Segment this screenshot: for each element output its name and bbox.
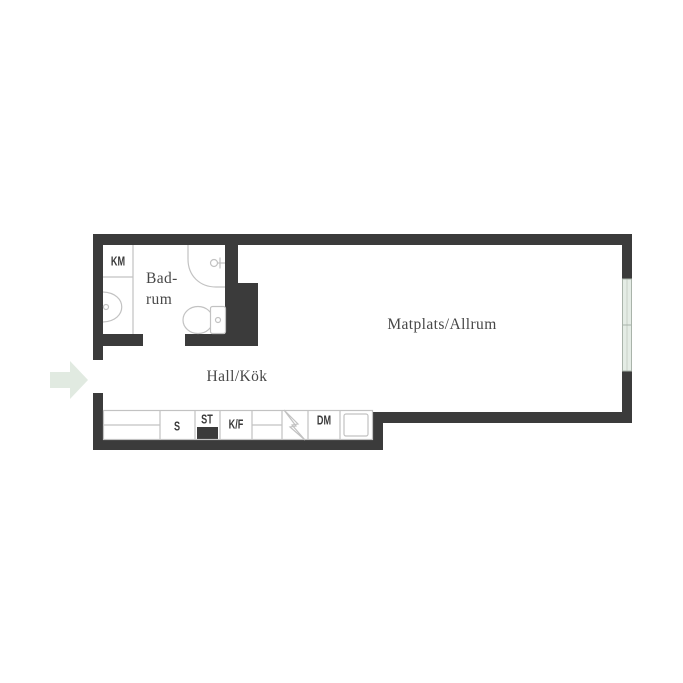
toilet-icon [183,307,226,334]
label-bathroom-line2: rum [146,289,178,310]
wall-right-lower [622,371,632,423]
kitchen-sink-icon [344,414,368,436]
bath-sink-icon [103,292,122,322]
wall-bottom-right [373,412,632,423]
wall-bath-bottom-right [185,334,258,346]
label-dishwasher: DM [317,413,331,428]
wall-bath-bottom-left [93,334,143,346]
entrance-arrow-icon [50,361,88,399]
label-fridge-freezer: K/F [229,417,244,432]
label-bathroom-line1: Bad- [146,268,178,289]
wall-bottom-left [93,440,383,450]
label-pantry: S [174,419,180,434]
stove-icon [284,410,305,440]
label-washing-machine: KM [111,254,125,269]
wall-bath-divider-narrow [225,245,238,283]
window-icon [623,279,632,371]
wall-bath-divider-wide [225,283,258,334]
floorplan-drawing [0,0,683,683]
wall-top [93,234,632,245]
label-hall-kitchen: Hall/Kök [207,368,268,386]
wall-right-upper [622,234,632,279]
shower-icon [188,245,225,287]
label-cleaning-closet: ST [201,412,213,427]
floorplan: KM Bad- rum Hall/Kök Matplats/Allrum S S… [0,0,683,683]
label-dining-livingroom: Matplats/Allrum [387,316,496,334]
label-bathroom: Bad- rum [146,268,178,310]
